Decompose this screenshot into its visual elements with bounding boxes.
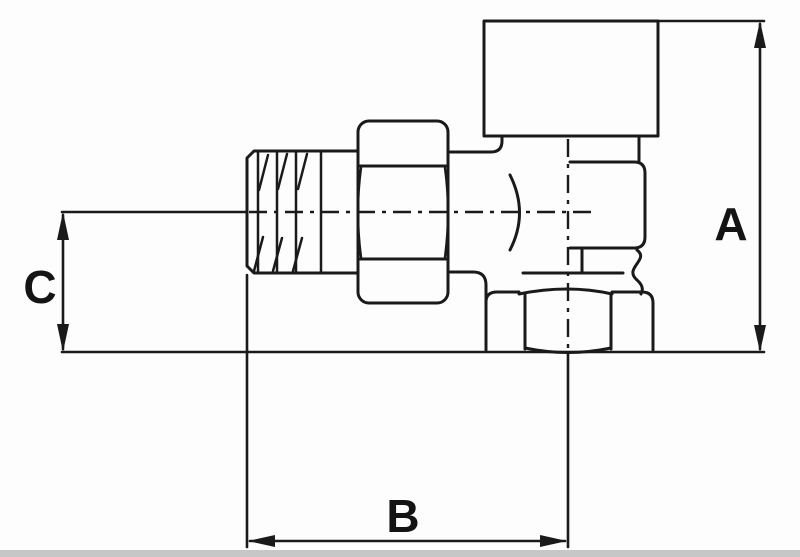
dim-c-arrow-up-icon [57,212,69,240]
dim-label-c: C [23,261,56,313]
bottom-nut-center-face-top-arc [519,289,612,294]
valve-technical-drawing: A B C [0,0,800,557]
bottom-nut-right-face-top [612,292,653,350]
body-shoulder-outline [448,136,502,152]
body-bottom-left-outline [448,272,486,350]
dim-a-arrow-down-icon [754,325,766,352]
dim-b-arrow-left-icon [248,535,275,547]
dim-c-arrow-down-icon [57,324,69,352]
dim-b-arrow-right-icon [540,535,567,547]
valve-cap-outline [484,21,658,136]
dim-label-a: A [714,198,747,250]
bottom-nut-left-face-top [486,292,519,302]
dim-label-b: B [386,490,419,542]
drawing-canvas: A B C [0,0,800,557]
image-bottom-strip [0,550,800,557]
outlet-port-outline [570,162,645,248]
thread-helix-line [259,155,268,190]
dim-a-arrow-up-icon [754,21,766,48]
thread-helix-line [298,154,307,189]
thread-helix-line [293,238,302,271]
body-break-squiggle [633,250,642,294]
thread-helix-line [278,154,287,189]
